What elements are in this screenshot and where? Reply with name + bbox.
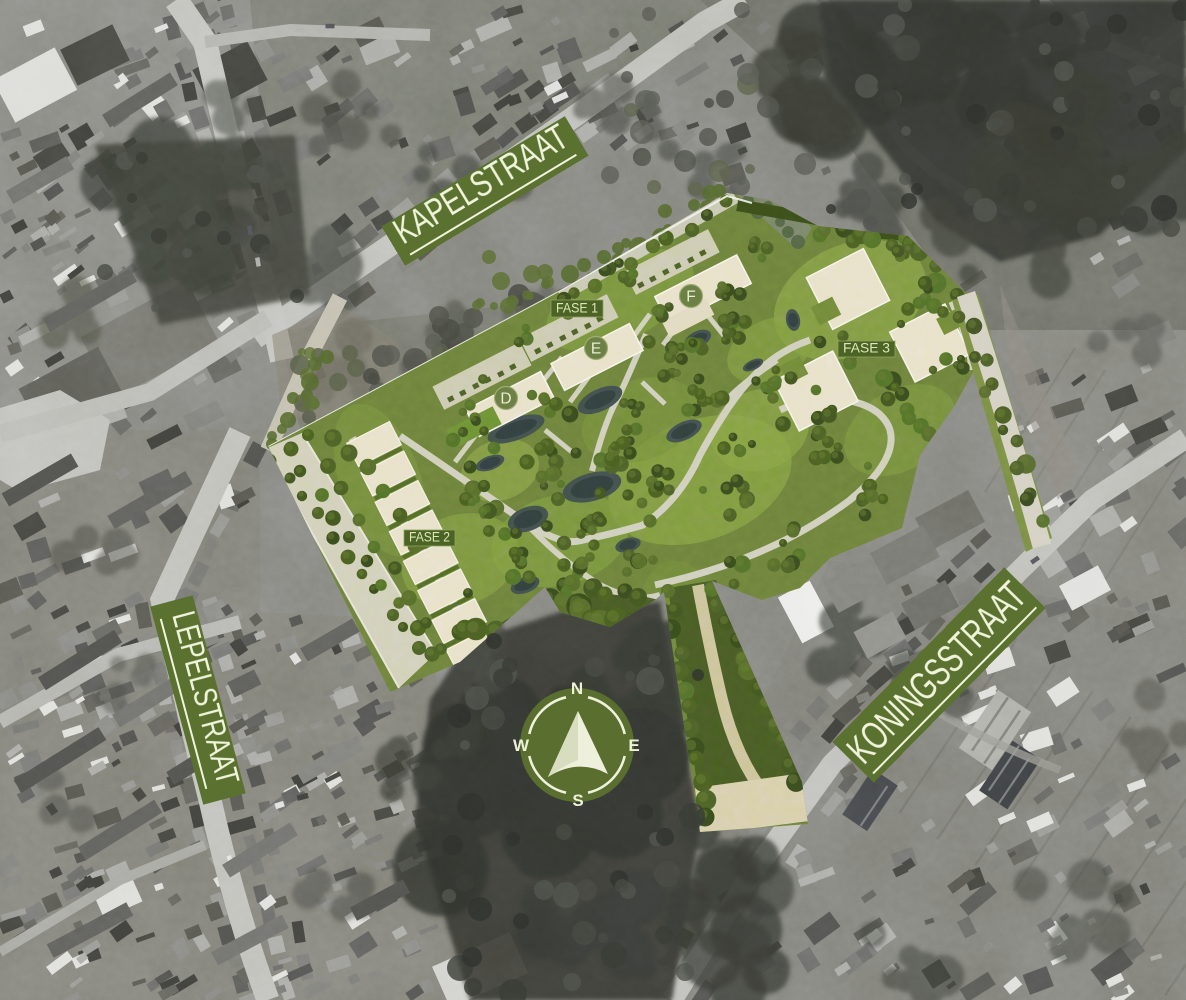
svg-text:FASE 3: FASE 3 <box>843 341 890 356</box>
svg-text:E: E <box>591 341 601 358</box>
svg-text:E: E <box>628 736 639 755</box>
svg-text:F: F <box>686 289 695 306</box>
svg-text:FASE 1: FASE 1 <box>556 301 598 316</box>
svg-text:S: S <box>572 791 583 810</box>
svg-text:FASE 2: FASE 2 <box>409 530 450 545</box>
svg-text:N: N <box>571 679 583 698</box>
svg-text:D: D <box>500 391 511 408</box>
svg-text:W: W <box>513 736 530 755</box>
